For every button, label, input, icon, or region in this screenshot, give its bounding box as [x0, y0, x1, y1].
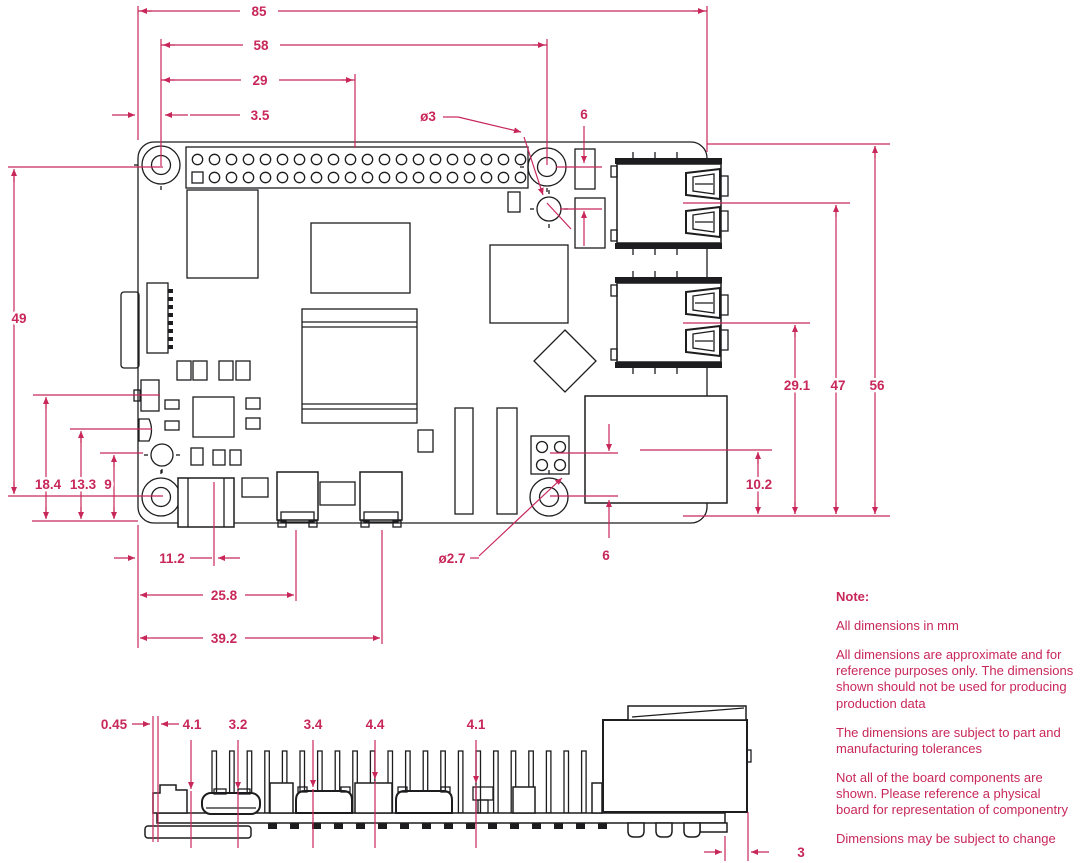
- chip-wireless: [490, 245, 568, 323]
- note-item: All dimensions in mm: [836, 618, 1076, 634]
- pcb-edge-tab: [700, 823, 727, 832]
- mounting-hole-top-right: [520, 148, 566, 192]
- poe-header: [531, 436, 569, 474]
- mounting-hole-bottom-left: [142, 470, 180, 516]
- gpio-pins: [192, 154, 526, 183]
- note-item: Not all of the board components are show…: [836, 770, 1076, 818]
- dim-hdmi1-center: 39.2: [211, 631, 237, 646]
- dim-usbc-center: 11.2: [159, 551, 185, 566]
- note-item: All dimensions are approximate and for r…: [836, 647, 1076, 711]
- chip-ram: [311, 223, 410, 293]
- note-item: Dimensions may be subject to change: [836, 831, 1076, 847]
- usb-eth-block-side: [603, 706, 751, 812]
- component-pad: [320, 482, 355, 505]
- dim-eth-center: 10.2: [746, 477, 772, 492]
- notes-title: Note:: [836, 589, 1076, 605]
- display-connector: [147, 283, 173, 353]
- dim-hole-span-x: 58: [253, 38, 269, 53]
- component-pad: [508, 192, 520, 212]
- passive-components: [165, 361, 260, 465]
- dim-side-h2: 3.2: [229, 717, 248, 732]
- dim-usb-upper-center: 47: [830, 378, 845, 393]
- dim-left-comp2: 13.3: [70, 477, 97, 492]
- dim-top-hole-gap: 6: [580, 107, 588, 122]
- component-pad: [242, 478, 268, 497]
- dim-side-gap: 0.45: [101, 717, 128, 732]
- component-side: [592, 783, 602, 813]
- component-pad: [575, 198, 605, 248]
- usb-c-power-connector: [178, 478, 234, 527]
- microsd-card-side: [145, 826, 251, 838]
- dim-gpio-offset: 29: [252, 73, 267, 88]
- usb-c-side: [202, 789, 260, 814]
- crystal-diamond: [534, 330, 596, 392]
- dim-side-h5: 4.1: [467, 717, 486, 732]
- component-side: [478, 800, 488, 813]
- board-top-view: [121, 142, 728, 527]
- under-board-feet: [628, 823, 700, 837]
- dim-top-hole-dia: ø3: [420, 109, 436, 124]
- dim-board-height: 56: [869, 378, 885, 393]
- component-side: [355, 783, 392, 813]
- dim-hole-span-y: 49: [11, 311, 26, 326]
- gpio-header: [186, 147, 528, 188]
- mounting-hole-top-left: [134, 146, 180, 190]
- dimension-drawing: 85 58 29 3.5 ø3 6 49: [0, 0, 1080, 863]
- dim-side-overhang: 3: [797, 845, 805, 860]
- micro-hdmi-0-side: [296, 787, 352, 813]
- micro-hdmi-0-connector: [277, 472, 318, 527]
- dimension-annotations: 85 58 29 3.5 ø3 6 49: [8, 4, 890, 648]
- chip-pmic: [193, 397, 234, 437]
- component-side: [270, 783, 293, 813]
- edge-component-wedge: [139, 419, 152, 441]
- dim-side-h1: 4.1: [183, 717, 202, 732]
- gpio-pin1-square-pad: [192, 172, 203, 183]
- dim-side-h4: 4.4: [366, 717, 385, 732]
- dim-board-width: 85: [251, 4, 267, 19]
- analog-hole: [144, 444, 180, 473]
- dim-edge-to-hole: 3.5: [251, 108, 270, 123]
- component-side: [513, 787, 535, 813]
- dim-usb-lower-center: 29.1: [784, 378, 811, 393]
- under-board-pads: [268, 823, 607, 829]
- dim-left-comp1: 18.4: [35, 477, 62, 492]
- component-pad: [575, 149, 595, 189]
- dim-side-h3: 3.4: [304, 717, 323, 732]
- dim-bottom-hole-dia: ø2.7: [438, 551, 465, 566]
- notes-block: Note: All dimensions in mm All dimension…: [836, 589, 1076, 860]
- chip-usb-controller: [187, 190, 258, 278]
- chip-soc: [302, 309, 417, 423]
- camera-connector: [497, 408, 517, 514]
- component-pad: [418, 430, 433, 452]
- dim-bottom-hole-gap: 6: [602, 548, 610, 563]
- note-item: The dimensions are subject to part and m…: [836, 725, 1076, 757]
- microsd-card: [121, 292, 139, 368]
- micro-hdmi-1-side: [396, 787, 452, 813]
- dim-hdmi0-center: 25.8: [211, 588, 238, 603]
- dim-left-comp3: 9: [104, 477, 112, 492]
- camera-connector: [455, 408, 473, 514]
- mounting-hole-bottom-right: [530, 470, 568, 516]
- micro-hdmi-1-connector: [360, 472, 402, 527]
